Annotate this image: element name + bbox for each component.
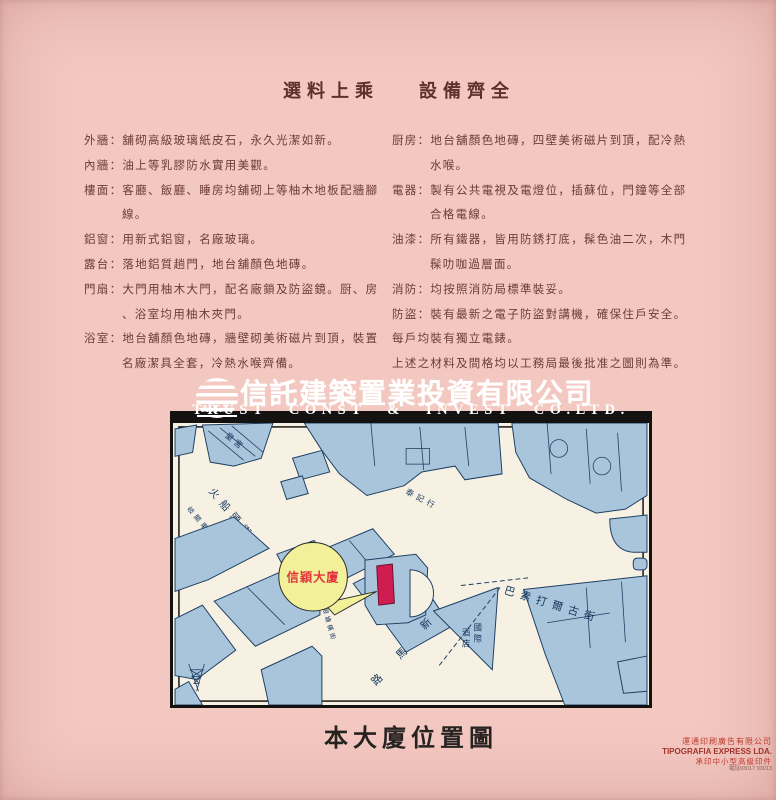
spec-line-text: 浴室：地台舖顏色地磚，牆壁砌美術磁片到頂，裝置 [84, 333, 378, 345]
map-caption: 本大廈位置圖 [170, 718, 652, 753]
spec-line-text: 消防：均按照消防局標準裝妥。 [392, 284, 571, 296]
map-building-block [512, 423, 647, 513]
map-building-block [610, 515, 647, 552]
map-building-block [633, 558, 647, 570]
header-equipment: 設備齊全 [419, 77, 515, 103]
company-brand-band: A.T.T. 信託建築置業投資有限公司 TRUST CONST & INVEST… [0, 372, 776, 424]
spec-line: 外牆：舖砌高級玻璃紙皮石，永久光潔如新。 [84, 129, 392, 154]
spec-line-text: 外牆：舖砌高級玻璃紙皮石，永久光潔如新。 [84, 135, 340, 147]
spec-line-text: 鋁窗：用新式鋁窗，名廠玻璃。 [84, 234, 263, 246]
spec-line-text: 電器：製有公共電視及電燈位，插蘇位，門鐘等全部 [392, 185, 686, 197]
spec-line-text: 每戶均裝有獨立電錶。 [392, 333, 520, 345]
spec-line: 電器：製有公共電視及電燈位，插蘇位，門鐘等全部 [392, 179, 714, 204]
spec-line: 油漆：所有鐵器，皆用防銹打底，髹色油二次，木門 [392, 228, 714, 253]
map-building-block [304, 423, 502, 495]
map-label-newroad-3: 路 [369, 671, 386, 688]
callout-building-name: 信穎大廈 [287, 570, 340, 585]
spec-line-text: 髹叻咖過層面。 [430, 259, 520, 271]
spec-line: 浴室：地台舖顏色地磚，牆壁砌美術磁片到頂，裝置 [84, 327, 392, 352]
subject-building-highlight [377, 564, 395, 605]
spec-line: 鋁窗：用新式鋁窗，名廠玻璃。 [84, 228, 392, 253]
printer-credit: 運通印刷廣告有限公司 TIPOGRAFIA EXPRESS LDA. 承印中小型… [620, 737, 772, 773]
spec-line-text: 線。 [122, 209, 148, 221]
map-building-block [175, 425, 197, 456]
spec-line: 髹叻咖過層面。 [392, 253, 714, 278]
printer-name-chinese: 運通印刷廣告有限公司 [620, 737, 772, 747]
spec-line-text: 上述之材料及間格均以工務局最後批准之圖則為準。 [392, 358, 686, 370]
spec-line-text: 樓面：客廳、飯廳、睡房均舖砌上等柚木地板配牆腳 [84, 185, 378, 197]
company-name-english: TRUST CONST & INVEST CO.LTD. [170, 402, 652, 419]
spec-line-text: 內牆：油上等乳膠防水實用美觀。 [84, 160, 276, 172]
map-dashed-road [461, 578, 530, 586]
spec-line: 門扇：大門用柚木大門，配名廠鎖及防盜鏡。厨、房 [84, 278, 392, 303]
spec-line-text: 露台：落地鋁質趟門，地台舖顏色地磚。 [84, 259, 314, 271]
spec-line-text: 水喉。 [430, 160, 468, 172]
brochure-page: 選料上乘 設備齊全 外牆：舖砌高級玻璃紙皮石，永久光潔如新。內牆：油上等乳膠防水… [0, 0, 776, 800]
spec-line: 每戶均裝有獨立電錶。 [392, 327, 714, 352]
map-label-hong: 泰記行 [404, 486, 440, 511]
spec-line-text: 合格電線。 [430, 209, 494, 221]
spec-line: 樓面：客廳、飯廳、睡房均舖砌上等柚木地板配牆腳 [84, 179, 392, 204]
map-building-block [293, 450, 330, 479]
map-building-block [261, 646, 322, 705]
location-map: 皇宮 泰記行 火船頭街 岐關車站 [170, 420, 652, 708]
spec-line-text: 防盜：裝有最新之電子防盜對講機，確保住戶安全。 [392, 309, 686, 321]
map-building-block [281, 476, 308, 500]
spec-line: 露台：落地鋁質趟門，地台舖顏色地磚。 [84, 253, 392, 278]
spec-column-left: 外牆：舖砌高級玻璃紙皮石，永久光潔如新。內牆：油上等乳膠防水實用美觀。樓面：客廳… [84, 129, 392, 377]
map-label-hotel-right: 國際 [474, 624, 483, 644]
location-map-svg: 皇宮 泰記行 火船頭街 岐關車站 [173, 423, 649, 705]
spec-column-right: 厨房：地台舖顏色地磚，四壁美術磁片到頂，配冷熱水喉。電器：製有公共電視及電燈位，… [392, 129, 714, 377]
printer-services: 承印中小型高級印件 [620, 757, 772, 766]
spec-line-text: 油漆：所有鐵器，皆用防銹打底，髹色油二次，木門 [392, 234, 686, 246]
spec-line: 防盜：裝有最新之電子防盜對講機，確保住戶安全。 [392, 303, 714, 328]
spec-line: 水喉。 [392, 154, 714, 179]
spec-line: 內牆：油上等乳膠防水實用美觀。 [84, 154, 392, 179]
printer-name-portuguese: TIPOGRAFIA EXPRESS LDA. [620, 747, 772, 757]
spec-line-text: 厨房：地台舖顏色地磚，四壁美術磁片到頂，配冷熱 [392, 135, 686, 147]
spec-line: 、浴室均用柚木夾門。 [84, 303, 392, 328]
printer-phone: 電話93017 93013 [620, 766, 772, 773]
spec-line: 線。 [84, 203, 392, 228]
spec-line: 合格電線。 [392, 203, 714, 228]
map-label-hotel-left: 酒店 [462, 628, 470, 648]
spec-line-text: 名廠潔具全套，冷熱水喉齊備。 [122, 358, 301, 370]
header-materials: 選料上乘 [283, 77, 379, 103]
spec-line: 厨房：地台舖顏色地磚，四壁美術磁片到頂，配冷熱 [392, 129, 714, 154]
spec-line-text: 、浴室均用柚木夾門。 [122, 309, 250, 321]
spec-line-text: 門扇：大門用柚木大門，配名廠鎖及防盜鏡。厨、房 [84, 284, 378, 296]
map-building-block [175, 605, 236, 679]
map-building-block [175, 517, 269, 591]
spec-line: 消防：均按照消防局標準裝妥。 [392, 278, 714, 303]
map-building-block [618, 656, 647, 693]
